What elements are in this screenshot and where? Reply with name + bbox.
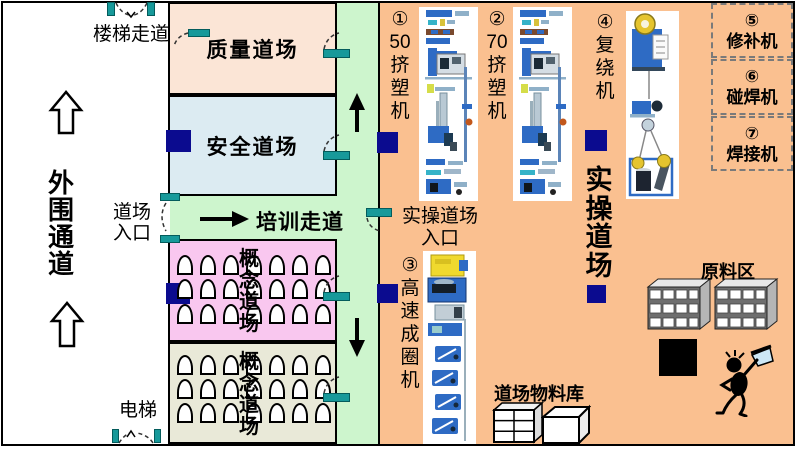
chair-icon [269, 379, 285, 399]
practical-entrance-label: 实操道场 入口 [394, 206, 486, 250]
black-square-marker [659, 339, 697, 376]
door-marker-elevator-right [154, 429, 161, 443]
machine-graphic [513, 7, 572, 201]
chair-icon [200, 279, 216, 299]
chair-icon [269, 355, 285, 375]
chair-icon [269, 279, 285, 299]
material-store-box-icon [541, 403, 591, 445]
worker-stick-figure-icon [712, 343, 782, 417]
chair-icon [292, 355, 308, 375]
raw-material-shelf-icon [713, 277, 779, 331]
door-marker-quality-right [323, 49, 350, 58]
rewinder-machine-image [626, 11, 679, 199]
chair-icon [200, 379, 216, 399]
chair-icon [292, 403, 308, 423]
door-marker-corridor-left-bottom [160, 235, 180, 243]
chair-icon [200, 355, 216, 375]
raw-material-shelf-icon [646, 277, 712, 331]
facility-layout-diagram: 质量道场 安全道场 楼梯走道 外 围 通 道 道场 入口 电梯 培训走道 实 操… [0, 0, 800, 452]
repair-machine-label: ⑤ 修补机 [727, 10, 778, 52]
dojo-entrance-label: 道场 入口 [104, 202, 160, 244]
material-store-shelf-icon [492, 400, 544, 444]
board-marker [166, 130, 191, 152]
station-welder: ⑦ 焊接机 [711, 116, 793, 171]
elevator-label: 电梯 [119, 400, 157, 421]
extruder-50-label: ① 50 挤 塑 机 [385, 8, 415, 123]
chair-icon [269, 255, 285, 275]
stair-walkway-label: 楼梯走道 [93, 24, 169, 45]
machine-graphic [626, 11, 679, 199]
chair-icon [177, 355, 193, 375]
chair-icon [269, 304, 285, 324]
chair-icon [292, 379, 308, 399]
material-store-label: 道场物料库 [494, 380, 584, 406]
safety-dojo-label: 安全道场 [207, 131, 299, 161]
board-marker [585, 130, 607, 151]
chair-icon [292, 304, 308, 324]
chair-icon [177, 304, 193, 324]
coiler-machine-image [423, 251, 476, 444]
chair-icon [315, 304, 331, 324]
board-marker [377, 132, 398, 153]
door-marker-stairs-left [107, 2, 115, 16]
chair-icon [177, 403, 193, 423]
chair-icon [177, 379, 193, 399]
concept-dojo-a-label: 概 念 道 场 [234, 249, 264, 335]
chair-icon [177, 255, 193, 275]
machine-graphic [419, 7, 478, 201]
door-marker-stairs-right [147, 2, 155, 16]
training-corridor-label: 培训走道 [256, 206, 344, 236]
station-spot-welder: ⑥ 碰焊机 [711, 59, 793, 115]
door-marker-concept-a-right [323, 292, 350, 301]
door-marker-quality-left [188, 29, 210, 37]
chair-icon [200, 403, 216, 423]
raw-material-label: 原料区 [701, 258, 755, 284]
station-repair-machine: ⑤ 修补机 [711, 3, 793, 58]
board-marker [587, 285, 606, 303]
chair-icon [315, 255, 331, 275]
quality-dojo-label: 质量道场 [207, 34, 299, 64]
perimeter-corridor-label: 外 围 通 道 [44, 170, 78, 278]
door-marker-corridor-left-top [160, 193, 180, 201]
machine-graphic [423, 251, 476, 444]
door-marker-elevator-left [112, 429, 119, 443]
door-marker-practical-entrance [366, 208, 392, 217]
room-safety-dojo: 安全道场 [168, 95, 337, 196]
room-quality-dojo: 质量道场 [168, 2, 337, 95]
door-marker-concept-b-right [323, 393, 350, 402]
chair-icon [200, 255, 216, 275]
extruder-70-machine-image [513, 7, 572, 201]
chair-icon [177, 279, 193, 299]
welder-label: ⑦ 焊接机 [727, 123, 778, 165]
extruder-50-machine-image [419, 7, 478, 201]
chair-icon [269, 403, 285, 423]
chair-icon [315, 403, 331, 423]
coiler-label: ③ 高 速 成 圈 机 [395, 254, 425, 392]
chair-icon [292, 255, 308, 275]
rewinder-label: ④ 复 绕 机 [590, 11, 620, 103]
extruder-70-label: ② 70 挤 塑 机 [482, 8, 512, 123]
chair-icon [200, 304, 216, 324]
practical-dojo-label: 实 操 道 场 [581, 166, 617, 280]
chair-icon [315, 355, 331, 375]
door-marker-safety-right [323, 151, 350, 160]
spot-welder-label: ⑥ 碰焊机 [727, 66, 778, 108]
chair-icon [292, 279, 308, 299]
concept-dojo-b-label: 概 念 道 场 [234, 352, 264, 438]
